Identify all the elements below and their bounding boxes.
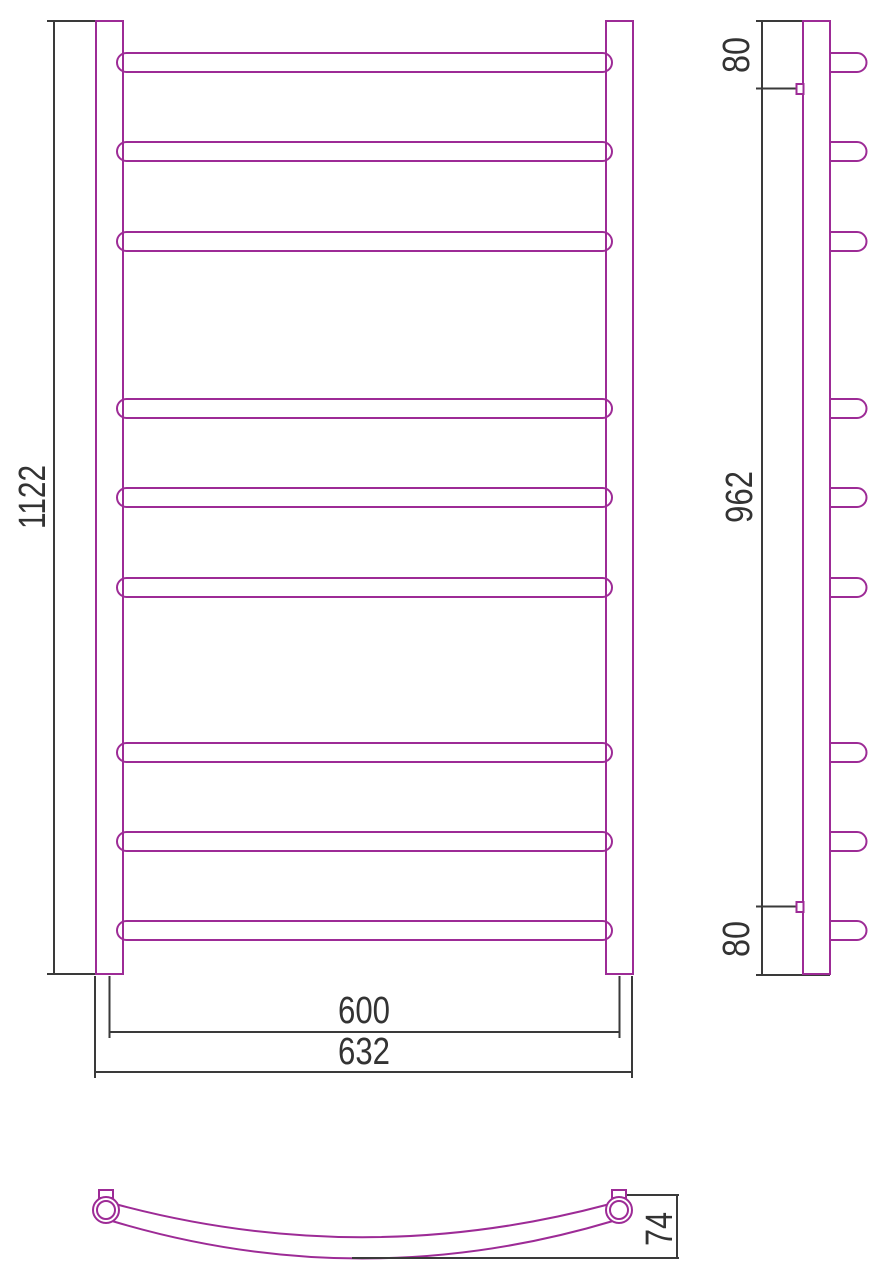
side-rung-ends [830,53,867,940]
side-dimension-chain [756,21,830,975]
top-view: 74 [93,1190,681,1259]
front-view: 1122 600 [12,21,633,1078]
top-right-post-inner [610,1201,628,1219]
front-rung-4 [117,399,612,418]
side-rung-1 [830,53,867,72]
front-rung-8 [117,832,612,851]
drawing-canvas: 1122 600 [0,0,887,1280]
side-post-group [797,21,831,974]
dim-label-632: 632 [338,1031,390,1073]
side-rung-5 [830,488,867,507]
dim-label-74: 74 [639,1212,681,1246]
front-left-post [96,21,123,974]
dim-label-962: 962 [719,471,761,523]
side-post [803,21,830,974]
dim-label-1122: 1122 [12,465,54,529]
side-rung-8 [830,832,867,851]
side-wall-bracket-top [797,84,804,94]
side-wall-bracket-bottom [797,902,804,912]
dim-label-600: 600 [338,990,390,1032]
front-rung-1 [117,53,612,72]
side-rung-6 [830,578,867,597]
front-rung-7 [117,743,612,762]
front-rung-2 [117,142,612,161]
top-tube-front-edge [117,1205,608,1238]
front-rung-9 [117,921,612,940]
side-rung-7 [830,743,867,762]
front-rungs [117,53,612,940]
front-rung-6 [117,578,612,597]
front-rung-3 [117,232,612,251]
top-left-post-inner [97,1201,115,1219]
towel-rail-drawing: 1122 600 [0,0,887,1280]
dim-label-80-bottom: 80 [716,921,758,957]
side-rung-4 [830,399,867,418]
side-rung-2 [830,142,867,161]
front-right-post [606,21,633,974]
top-curved-tube [112,1205,613,1259]
side-rung-3 [830,232,867,251]
front-height-dimension [47,21,96,974]
top-tube-back-edge [112,1221,613,1259]
side-rung-9 [830,921,867,940]
front-rung-5 [117,488,612,507]
dim-label-80-top: 80 [716,37,758,73]
side-view: 80 962 80 [716,21,867,975]
